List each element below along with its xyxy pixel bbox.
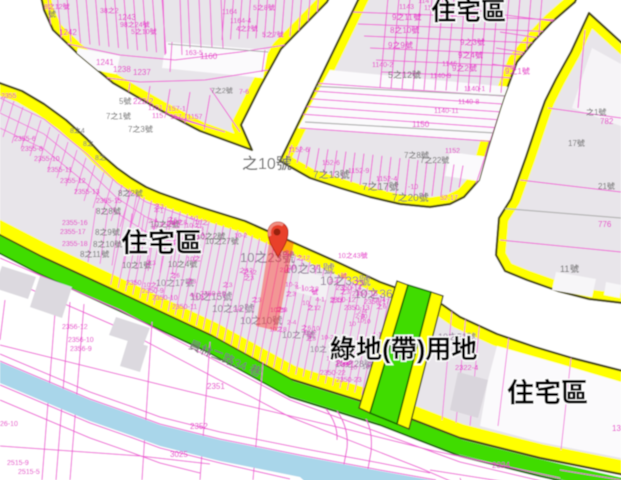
svg-text:10: 10 xyxy=(258,156,276,173)
svg-text:2355-6: 2355-6 xyxy=(14,136,36,143)
svg-text:2324: 2324 xyxy=(492,461,510,470)
svg-text:7: 7 xyxy=(211,88,215,95)
svg-text:3: 3 xyxy=(346,289,350,296)
svg-text:7: 7 xyxy=(362,182,368,193)
svg-text:1140-9: 1140-9 xyxy=(430,73,451,80)
svg-text:1146: 1146 xyxy=(442,61,457,68)
svg-text:8: 8 xyxy=(284,307,288,314)
svg-text:163-5: 163-5 xyxy=(185,50,203,57)
svg-text:4-1: 4-1 xyxy=(315,296,325,303)
svg-text:10: 10 xyxy=(212,304,224,315)
svg-text:10: 10 xyxy=(357,317,365,324)
svg-text:2355-17: 2355-17 xyxy=(60,229,86,236)
svg-text:10: 10 xyxy=(205,237,214,246)
svg-text:1: 1 xyxy=(594,108,599,117)
svg-text:12: 12 xyxy=(336,298,344,305)
svg-text:5: 5 xyxy=(253,5,257,12)
svg-text:1242: 1242 xyxy=(59,28,77,37)
svg-text:1140-1: 1140-1 xyxy=(464,86,485,93)
svg-text:10: 10 xyxy=(122,261,131,270)
svg-text:12: 12 xyxy=(402,70,412,80)
svg-text:2-4: 2-4 xyxy=(233,307,243,314)
svg-text:2322-4: 2322-4 xyxy=(455,363,478,372)
svg-text:10: 10 xyxy=(142,29,150,36)
svg-text:2-4: 2-4 xyxy=(358,308,368,315)
svg-text:5: 5 xyxy=(131,29,135,36)
svg-text:1152: 1152 xyxy=(445,148,460,155)
svg-text:7: 7 xyxy=(106,112,111,121)
svg-text:8: 8 xyxy=(83,141,87,148)
svg-text:5: 5 xyxy=(119,97,124,106)
svg-text:11: 11 xyxy=(92,250,101,259)
svg-text:2356-9: 2356-9 xyxy=(70,346,92,353)
svg-text:12: 12 xyxy=(55,4,63,11)
svg-text:9: 9 xyxy=(460,38,465,47)
svg-text:7: 7 xyxy=(313,170,319,181)
svg-text:2515-9: 2515-9 xyxy=(7,460,29,467)
svg-text:10: 10 xyxy=(302,300,310,307)
svg-text:8: 8 xyxy=(315,286,319,293)
svg-text:3: 3 xyxy=(250,275,254,282)
svg-text:17: 17 xyxy=(568,139,577,148)
svg-text:8: 8 xyxy=(93,240,98,249)
svg-text:27: 27 xyxy=(222,237,231,246)
svg-text:1164: 1164 xyxy=(222,9,237,16)
svg-text:7: 7 xyxy=(392,193,398,204)
svg-text:2515-5: 2515-5 xyxy=(18,469,40,476)
svg-text:1152-6: 1152-6 xyxy=(288,147,309,154)
svg-text:1143: 1143 xyxy=(399,4,414,11)
svg-text:8: 8 xyxy=(108,207,113,216)
svg-text:43: 43 xyxy=(353,253,361,260)
svg-text:1238: 1238 xyxy=(113,65,131,74)
svg-text:12: 12 xyxy=(314,305,322,312)
svg-text:1157: 1157 xyxy=(152,113,167,120)
svg-text:2350-11: 2350-11 xyxy=(172,304,197,311)
svg-text:8: 8 xyxy=(118,189,123,198)
svg-text:4: 4 xyxy=(81,128,85,135)
svg-text:3: 3 xyxy=(360,280,364,287)
svg-text:2-4: 2-4 xyxy=(148,218,158,225)
svg-text:2356-10: 2356-10 xyxy=(68,337,94,344)
svg-text:2356-12: 2356-12 xyxy=(62,324,88,331)
svg-text:8: 8 xyxy=(390,26,395,35)
svg-text:3: 3 xyxy=(140,125,145,134)
svg-text:2350-23: 2350-23 xyxy=(336,377,362,384)
svg-text:24: 24 xyxy=(135,22,143,29)
svg-text:8: 8 xyxy=(264,5,268,12)
svg-text:98: 98 xyxy=(120,22,128,29)
svg-text:2355: 2355 xyxy=(1,93,17,100)
svg-text:9: 9 xyxy=(392,13,397,22)
svg-text:7-6: 7-6 xyxy=(239,89,249,96)
svg-text:9: 9 xyxy=(505,67,510,76)
svg-text:10: 10 xyxy=(156,278,166,288)
svg-text:1243: 1243 xyxy=(118,13,136,22)
svg-text:2: 2 xyxy=(130,189,135,198)
svg-text:4: 4 xyxy=(470,51,475,60)
svg-text:10: 10 xyxy=(338,253,346,260)
svg-text:20: 20 xyxy=(408,193,420,204)
svg-text:17: 17 xyxy=(378,182,390,193)
svg-text:11: 11 xyxy=(404,13,413,22)
svg-text:1237: 1237 xyxy=(133,68,151,77)
svg-text:12: 12 xyxy=(303,255,311,262)
svg-text:2355-15: 2355-15 xyxy=(96,198,122,205)
svg-text:2351: 2351 xyxy=(207,382,225,391)
svg-text:10: 10 xyxy=(349,321,357,328)
svg-text:1: 1 xyxy=(118,112,123,121)
svg-text:3: 3 xyxy=(160,203,164,210)
svg-text:8: 8 xyxy=(96,207,101,216)
svg-text:9: 9 xyxy=(107,228,112,237)
svg-text:2350-10: 2350-10 xyxy=(152,295,178,302)
svg-text:3: 3 xyxy=(193,278,197,285)
svg-text:2355-12: 2355-12 xyxy=(60,178,86,185)
svg-text:2-4: 2-4 xyxy=(166,220,176,227)
svg-text:2-4: 2-4 xyxy=(329,279,339,286)
svg-text:2: 2 xyxy=(464,64,469,73)
svg-text:3: 3 xyxy=(229,282,233,289)
svg-text:3: 3 xyxy=(152,260,156,267)
svg-text:10: 10 xyxy=(350,365,358,372)
svg-text:21: 21 xyxy=(598,182,607,191)
svg-text:10: 10 xyxy=(363,318,371,325)
svg-text:10: 10 xyxy=(187,256,195,263)
svg-text:8: 8 xyxy=(44,4,48,11)
svg-text:10: 10 xyxy=(301,286,309,293)
svg-text:1: 1 xyxy=(517,67,522,76)
svg-text:7: 7 xyxy=(420,156,425,165)
svg-text:1164-4: 1164-4 xyxy=(230,18,251,25)
svg-text:2355-16: 2355-16 xyxy=(62,220,88,227)
svg-text:1140-11: 1140-11 xyxy=(434,108,459,115)
svg-text:2: 2 xyxy=(247,26,251,33)
svg-text:3: 3 xyxy=(292,291,296,298)
svg-text:2355-13: 2355-13 xyxy=(74,189,100,196)
svg-text:10: 10 xyxy=(105,240,114,249)
svg-text:8: 8 xyxy=(95,228,100,237)
svg-text:157-1: 157-1 xyxy=(168,106,186,113)
svg-text:2355-11: 2355-11 xyxy=(47,167,72,174)
svg-text:3025: 3025 xyxy=(170,450,188,459)
svg-text:1150: 1150 xyxy=(412,120,430,129)
svg-text:782: 782 xyxy=(600,117,614,126)
svg-text:8: 8 xyxy=(80,250,85,259)
svg-text:2350: 2350 xyxy=(126,280,142,287)
svg-text:2355-8: 2355-8 xyxy=(21,146,43,153)
svg-text:8: 8 xyxy=(70,128,74,135)
svg-text:13: 13 xyxy=(329,170,341,181)
svg-text:10-2: 10-2 xyxy=(304,330,317,337)
svg-text:10: 10 xyxy=(143,282,151,289)
svg-text:10: 10 xyxy=(362,364,370,371)
svg-text:2-4: 2-4 xyxy=(195,295,205,302)
svg-text:5: 5 xyxy=(262,32,266,39)
svg-text:10-2: 10-2 xyxy=(285,282,298,289)
svg-text:9: 9 xyxy=(388,41,393,50)
svg-text:1241: 1241 xyxy=(96,58,114,67)
svg-text:2-4: 2-4 xyxy=(287,320,297,327)
svg-text:22: 22 xyxy=(432,156,441,165)
svg-text:157-11157: 157-11157 xyxy=(170,114,203,121)
svg-text:114: 114 xyxy=(418,0,429,5)
svg-text:8: 8 xyxy=(95,155,99,162)
svg-text:8: 8 xyxy=(283,326,287,333)
svg-text:2: 2 xyxy=(222,88,226,95)
svg-text:10: 10 xyxy=(313,264,321,271)
svg-text:2350-22: 2350-22 xyxy=(320,370,346,377)
svg-text:6: 6 xyxy=(383,304,387,311)
svg-text:1151: 1151 xyxy=(148,105,163,112)
svg-text:10: 10 xyxy=(168,260,177,269)
svg-text:9: 9 xyxy=(400,41,405,50)
svg-text:11: 11 xyxy=(560,264,569,274)
svg-text:26-10: 26-10 xyxy=(0,421,18,428)
svg-text:38: 38 xyxy=(100,8,108,15)
svg-text:(: ( xyxy=(382,334,391,364)
svg-text:-10: -10 xyxy=(408,184,418,191)
svg-text:2355-18: 2355-18 xyxy=(62,241,88,248)
svg-text:1140-8: 1140-8 xyxy=(458,99,479,106)
svg-text:52-17: 52-17 xyxy=(440,195,458,202)
svg-text:3: 3 xyxy=(472,38,477,47)
svg-text:2350-15: 2350-15 xyxy=(352,291,378,298)
svg-text:2355-10: 2355-10 xyxy=(34,156,60,163)
svg-text:776: 776 xyxy=(598,220,612,229)
svg-text:152-6: 152-6 xyxy=(322,160,340,167)
svg-text:2-4: 2-4 xyxy=(376,297,386,304)
svg-text:10-2: 10-2 xyxy=(234,232,247,239)
svg-text:10: 10 xyxy=(240,316,252,327)
svg-text:13: 13 xyxy=(612,424,621,433)
svg-text:10: 10 xyxy=(240,250,254,265)
svg-text:7: 7 xyxy=(128,125,133,134)
svg-text:1: 1 xyxy=(139,261,144,270)
svg-text:1140-2: 1140-2 xyxy=(372,62,393,69)
svg-text:9: 9 xyxy=(458,51,463,60)
svg-text:6: 6 xyxy=(176,273,180,280)
svg-text:2352: 2352 xyxy=(190,422,208,431)
svg-text:4: 4 xyxy=(236,26,240,33)
svg-text:5: 5 xyxy=(388,70,393,80)
svg-text:10: 10 xyxy=(402,26,411,35)
svg-text:10: 10 xyxy=(310,345,319,354)
svg-text:7: 7 xyxy=(273,32,277,39)
svg-text:7: 7 xyxy=(404,151,409,160)
svg-text:1152-9: 1152-9 xyxy=(348,168,369,175)
